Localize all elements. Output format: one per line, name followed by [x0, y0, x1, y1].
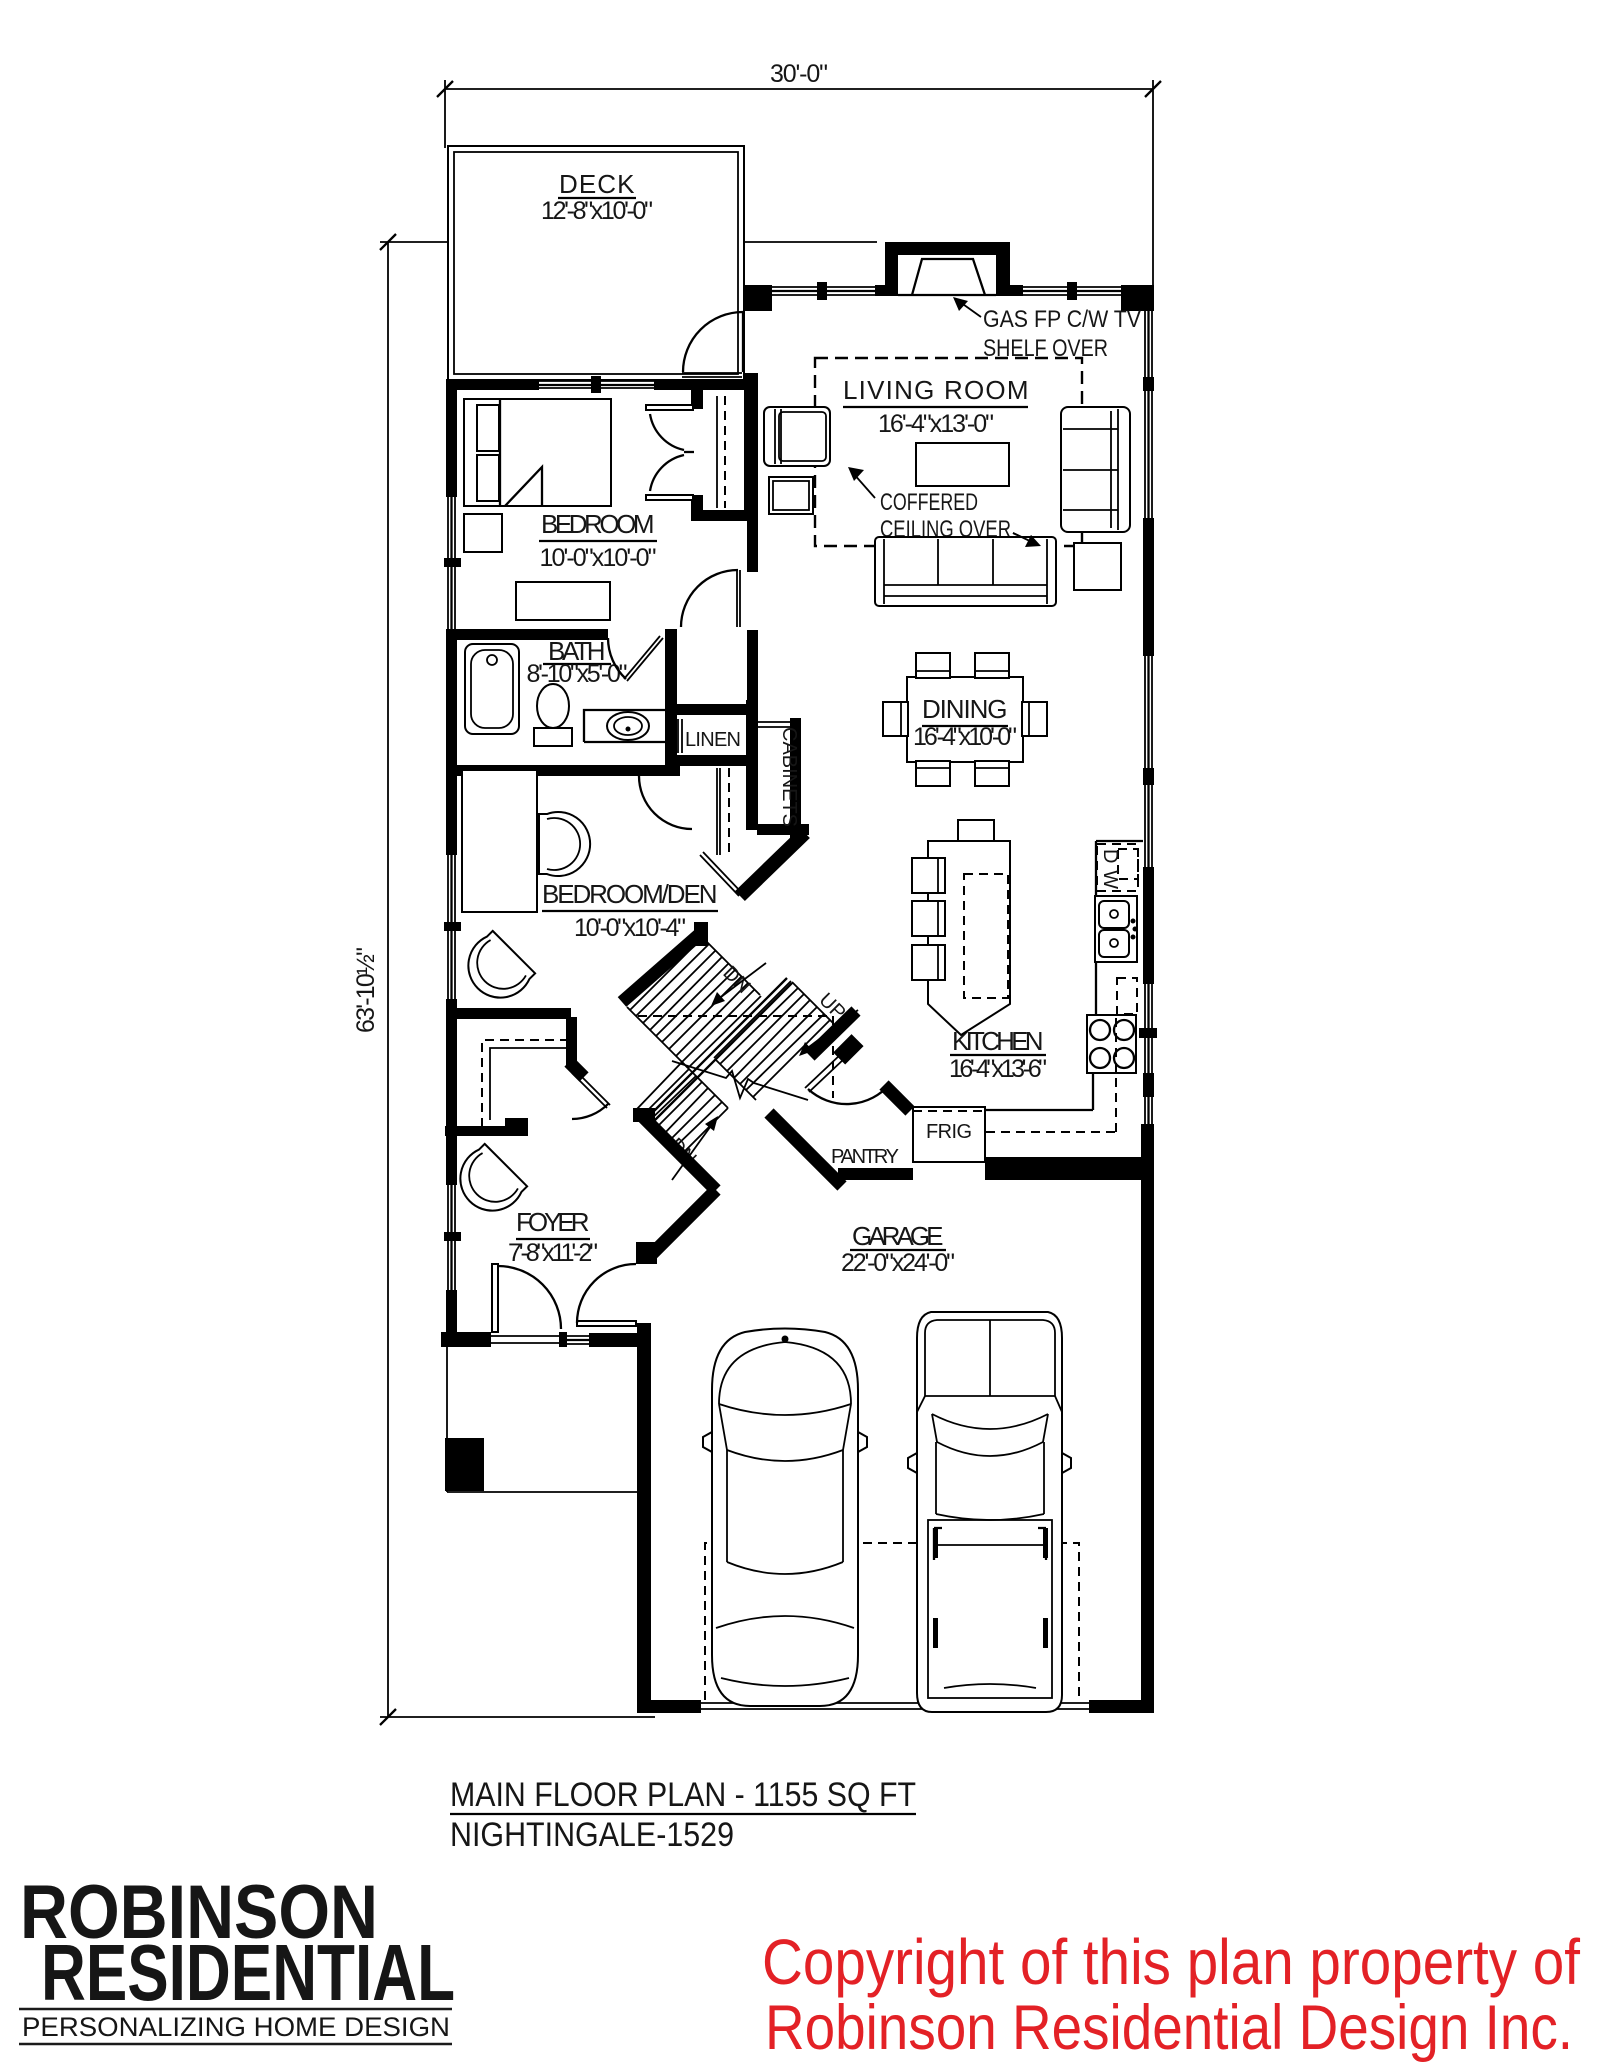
- svg-text:CABINETS: CABINETS: [778, 727, 800, 827]
- svg-text:12'-8"x10'-0": 12'-8"x10'-0": [541, 197, 653, 225]
- svg-text:PERSONALIZING HOME DESIGN: PERSONALIZING HOME DESIGN: [22, 2012, 450, 2042]
- svg-text:LIVING ROOM: LIVING ROOM: [843, 375, 1029, 405]
- svg-text:FOYER: FOYER: [516, 1207, 590, 1237]
- svg-text:BEDROOM: BEDROOM: [541, 509, 655, 539]
- svg-text:22'-0"x24'-0": 22'-0"x24'-0": [841, 1249, 955, 1277]
- svg-text:10'-0"x10'-4": 10'-0"x10'-4": [574, 914, 686, 942]
- svg-text:16'-4"x13'-0": 16'-4"x13'-0": [878, 410, 994, 438]
- svg-text:63'-10½": 63'-10½": [352, 947, 380, 1033]
- svg-text:16'-4"x10'-0": 16'-4"x10'-0": [913, 723, 1017, 751]
- svg-text:FRIG: FRIG: [926, 1121, 972, 1143]
- svg-text:SHELF OVER: SHELF OVER: [983, 335, 1108, 362]
- svg-text:10'-0"x10'-0": 10'-0"x10'-0": [540, 544, 657, 572]
- svg-text:BEDROOM/DEN: BEDROOM/DEN: [542, 879, 718, 909]
- svg-text:30'-0": 30'-0": [770, 60, 828, 88]
- svg-text:DINING: DINING: [922, 694, 1008, 724]
- svg-text:Copyright of this plan propert: Copyright of this plan property of: [762, 1926, 1580, 1998]
- svg-text:7'-8"x11'-2": 7'-8"x11'-2": [508, 1239, 598, 1267]
- svg-text:MAIN FLOOR PLAN - 1155 SQ FT: MAIN FLOOR PLAN - 1155 SQ FT: [450, 1776, 916, 1814]
- svg-text:PANTRY: PANTRY: [831, 1146, 899, 1168]
- svg-text:16'-4"x13'-6": 16'-4"x13'-6": [949, 1055, 1047, 1083]
- svg-text:RESIDENTIAL: RESIDENTIAL: [41, 1928, 455, 2017]
- svg-text:8'-10"x5'-0": 8'-10"x5'-0": [527, 660, 628, 688]
- svg-text:COFFERED: COFFERED: [880, 489, 978, 516]
- svg-text:DECK: DECK: [559, 169, 635, 199]
- svg-text:NIGHTINGALE-1529: NIGHTINGALE-1529: [450, 1816, 734, 1854]
- svg-text:GAS FP C/W TV: GAS FP C/W TV: [983, 306, 1141, 333]
- svg-text:LINEN: LINEN: [685, 729, 741, 751]
- svg-text:GARAGE: GARAGE: [852, 1221, 944, 1251]
- svg-text:Robinson Residential Design In: Robinson Residential Design Inc.: [765, 1993, 1573, 2063]
